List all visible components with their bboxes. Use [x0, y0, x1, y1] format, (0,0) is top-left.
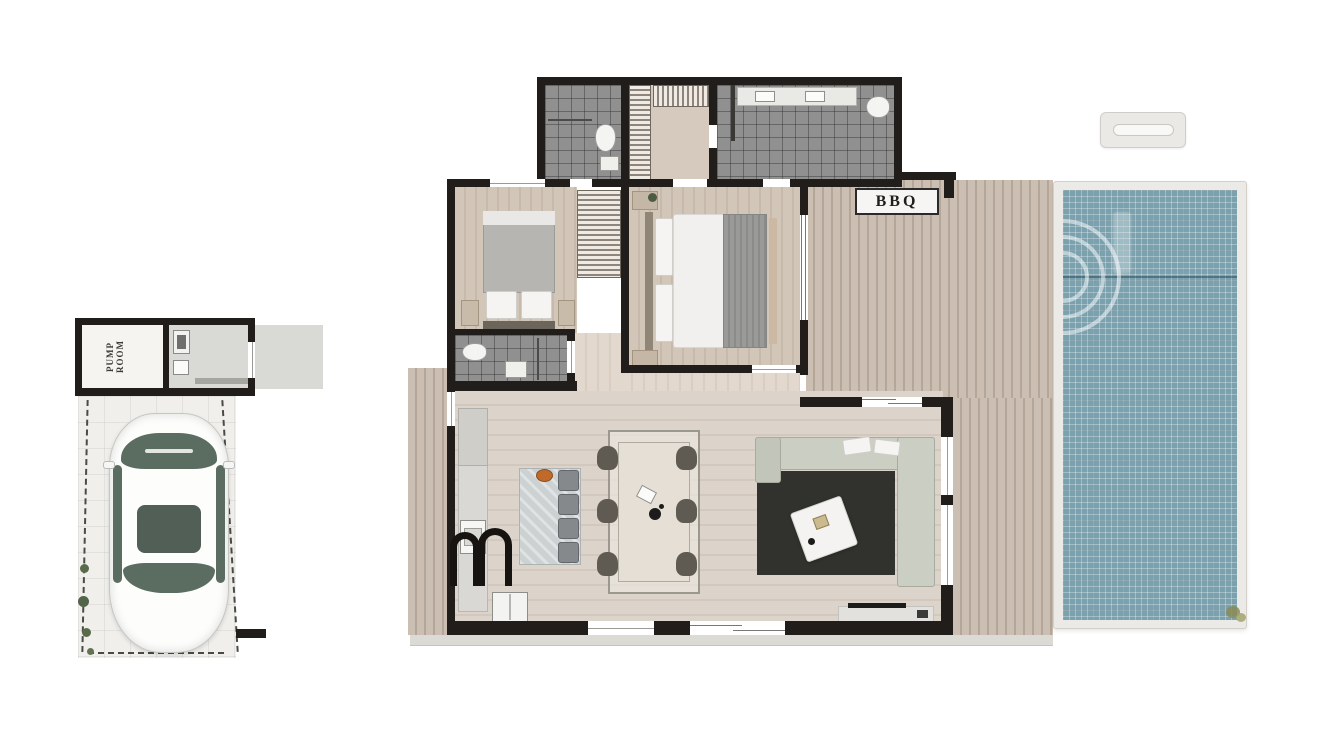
master-headboard — [645, 212, 653, 350]
utility-wall-divider — [163, 318, 169, 396]
bathroom-partition — [731, 85, 735, 141]
teapot-icon — [649, 508, 661, 520]
living-sliding-door-bottom — [690, 621, 785, 635]
shrub-icon — [80, 564, 89, 573]
kitchen-tall-cabinet — [458, 408, 488, 466]
toilet-icon — [595, 124, 616, 152]
bed2-sheet-fold — [483, 211, 555, 225]
wall-bedroom2-bath-divider — [447, 329, 575, 335]
shower-screen-line — [537, 338, 539, 380]
bedroom2-wardrobe — [577, 190, 621, 278]
pump-room-label: PUMP ROOM — [105, 328, 135, 386]
toilet-icon — [462, 343, 487, 361]
living-window-right — [941, 505, 953, 585]
wall-bath-small-bottom — [447, 381, 577, 391]
car-mirror-right — [223, 461, 235, 469]
bedroom2-window — [490, 179, 545, 187]
pool-water — [1063, 190, 1237, 620]
sink-icon — [505, 361, 527, 378]
living-window-bottom — [588, 621, 654, 635]
sofa-arm-left — [755, 437, 781, 483]
car-hood-line — [145, 449, 193, 453]
wall-top-right — [894, 77, 902, 185]
bar-stool — [558, 494, 579, 515]
toilet-icon — [866, 96, 890, 118]
living-window-right — [941, 437, 953, 495]
kitchen-sink-divider — [509, 594, 511, 620]
wall-top-outer — [537, 77, 902, 85]
washer-drum-icon — [177, 335, 186, 349]
pool-marking — [1113, 212, 1131, 274]
nightstand — [558, 300, 575, 326]
teapot-spout-icon — [659, 504, 664, 509]
coffee-table-item-icon — [808, 538, 815, 545]
bed2-pillow — [486, 291, 517, 319]
shrub-icon — [87, 648, 94, 655]
wall-bedroom2-master-divider — [621, 185, 629, 373]
dining-chair — [676, 499, 697, 523]
deck-wall-stub — [944, 180, 954, 198]
living-sliding-door-top — [862, 397, 922, 407]
nightstand — [461, 300, 479, 326]
basin-icon — [755, 91, 775, 102]
laundry-cabinet — [173, 360, 189, 375]
sofa-chaise — [897, 437, 935, 587]
shrub-icon — [78, 596, 89, 607]
master-door — [752, 365, 796, 373]
hallway-floor — [575, 333, 621, 395]
deck-left-strip — [408, 368, 447, 635]
master-sliding-door — [800, 215, 808, 320]
basin-icon — [805, 91, 825, 102]
dining-chair — [676, 552, 697, 576]
shrub-icon — [82, 628, 91, 637]
fruit-bowl-icon — [536, 469, 553, 482]
step-strip — [410, 635, 1053, 646]
bbq-label-text: BBQ — [876, 193, 919, 211]
wall-bath-closet-divider — [621, 77, 629, 185]
deck-pool-side — [953, 398, 1053, 645]
master-blanket — [723, 214, 767, 348]
master-duvet — [673, 214, 725, 348]
shower-screen-line — [548, 119, 592, 121]
car-sunroof — [137, 505, 201, 553]
arch-decor-right — [478, 528, 512, 586]
bathroom-left-door — [570, 179, 592, 187]
carport-wall-stub — [236, 629, 266, 638]
master-bed — [645, 212, 777, 350]
bar-stool — [558, 470, 579, 491]
sink-icon — [600, 156, 619, 171]
wall-closet-bath-divider-upper — [709, 77, 717, 125]
bed-end-bench — [769, 218, 777, 344]
bed2-headboard — [483, 321, 555, 329]
master-pillow — [655, 218, 673, 276]
bar-stool — [558, 518, 579, 539]
bath-small-door — [567, 341, 575, 373]
bed2-pillow — [521, 291, 552, 319]
car-mirror-left — [103, 461, 115, 469]
closet-opening — [673, 179, 707, 187]
car-side-window-right — [216, 465, 225, 583]
car-side-window-left — [113, 465, 122, 583]
car-top-view — [103, 413, 235, 653]
arch-decor-left — [450, 532, 480, 586]
closet-rack-top — [653, 85, 709, 107]
living-left-window — [447, 392, 455, 426]
media-box-icon — [917, 610, 928, 618]
utility-block: PUMP ROOM — [75, 318, 255, 396]
pool-plant-icon — [1236, 613, 1246, 622]
bar-stool — [558, 542, 579, 563]
master-pillow — [655, 284, 673, 342]
bed2 — [483, 211, 555, 331]
dining-chair — [676, 446, 697, 470]
dining-chair — [597, 552, 618, 576]
utility-door-gap — [248, 342, 255, 378]
bathroom-right-door — [763, 179, 790, 187]
tv-icon — [848, 603, 906, 608]
bench-cushion — [1113, 124, 1174, 136]
dining-chair — [597, 446, 618, 470]
dining-chair — [597, 499, 618, 523]
laundry-counter — [195, 378, 255, 384]
closet-rack-left — [629, 85, 651, 181]
floor-plan-canvas: PUMP ROOM BBQ — [0, 0, 1342, 754]
sofa-pillow — [873, 438, 901, 456]
wall-top-left — [537, 77, 545, 185]
plant-icon — [648, 193, 657, 202]
utility-wall-left — [75, 318, 82, 396]
bbq-label: BBQ — [855, 188, 939, 215]
